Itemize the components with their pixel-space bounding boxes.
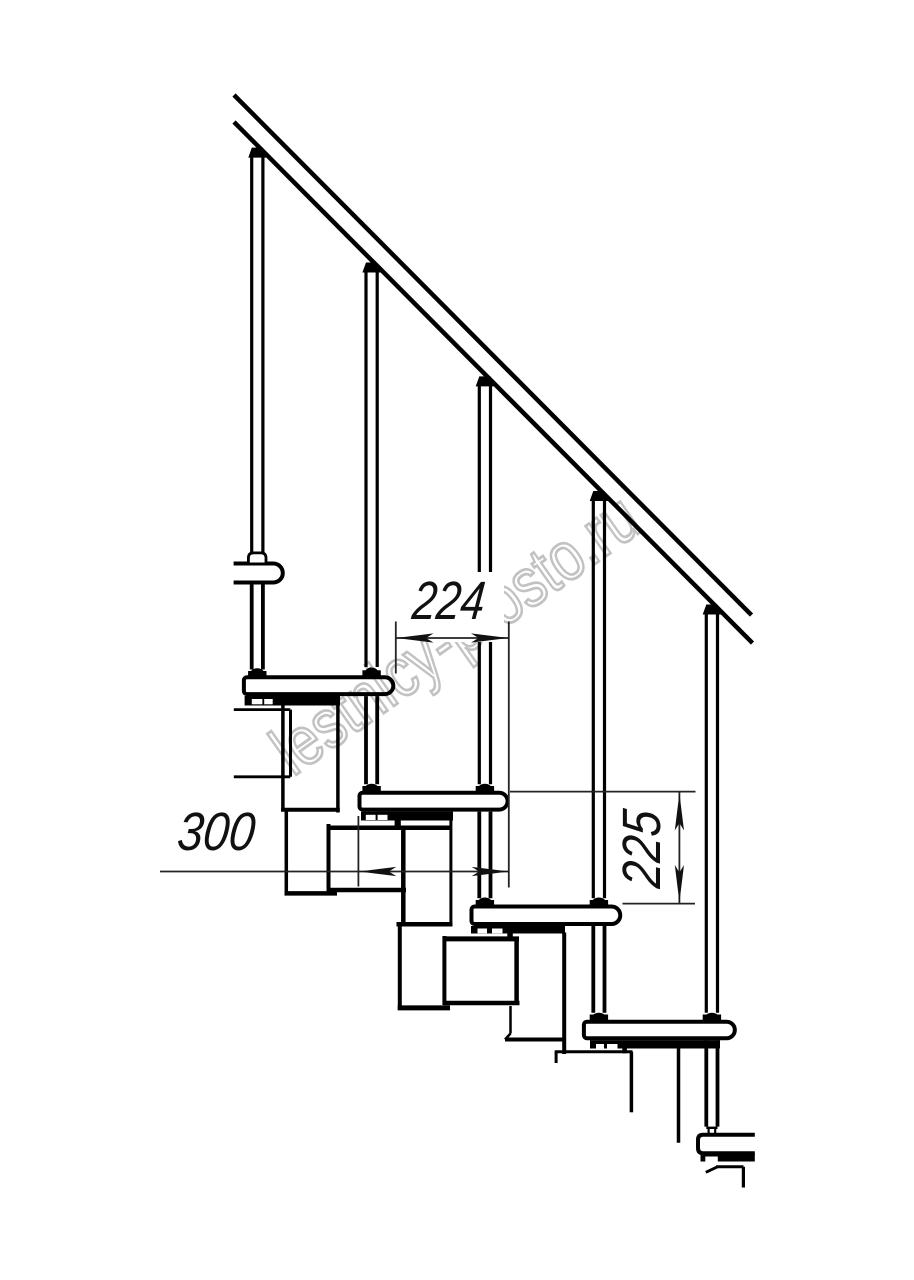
svg-text:300: 300 xyxy=(175,802,258,862)
svg-text:225: 225 xyxy=(612,806,672,891)
svg-text:224: 224 xyxy=(409,571,488,631)
